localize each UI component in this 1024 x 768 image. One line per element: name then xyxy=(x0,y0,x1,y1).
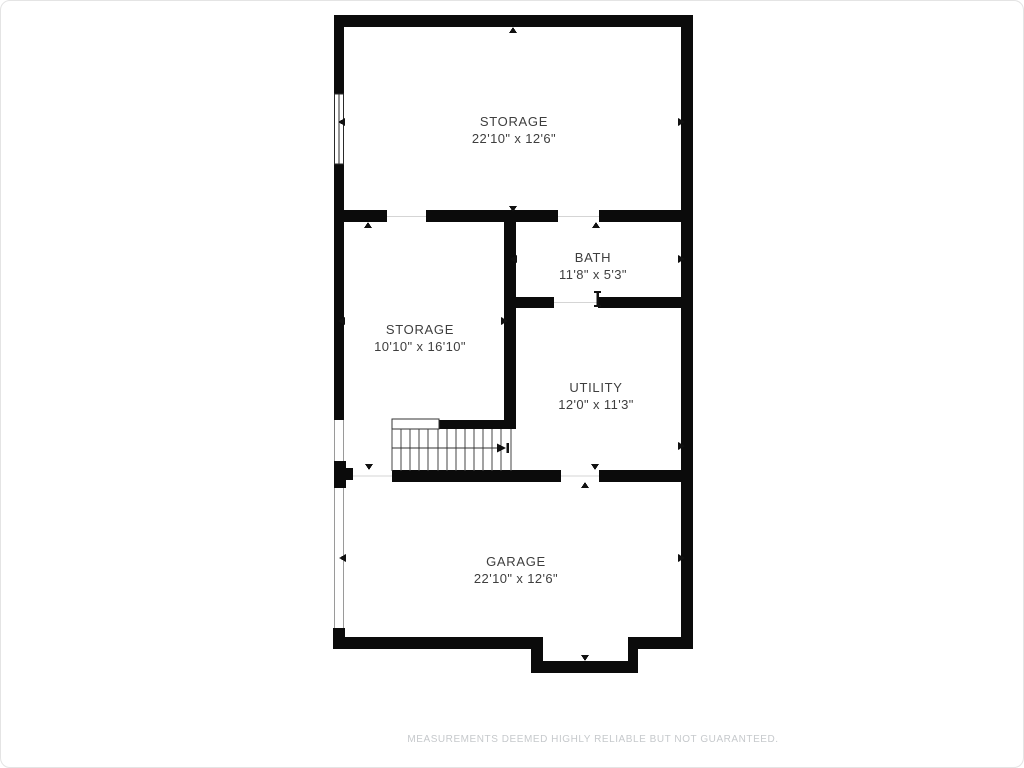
room-name: STORAGE xyxy=(472,114,556,130)
wall xyxy=(638,637,693,649)
room-label-utility: UTILITY 12'0" x 11'3" xyxy=(558,380,634,413)
wall xyxy=(334,210,387,222)
wall xyxy=(392,470,561,482)
room-label-storage-upper: STORAGE 22'10" x 12'6" xyxy=(472,114,556,147)
wall xyxy=(334,15,693,27)
wall xyxy=(504,297,554,308)
measure-arrow-icon xyxy=(509,27,517,33)
room-label-storage-middle: STORAGE 10'10" x 16'10" xyxy=(374,322,466,355)
wall xyxy=(439,420,516,429)
wall xyxy=(334,15,344,94)
wall xyxy=(599,470,693,482)
room-dimensions: 10'10" x 16'10" xyxy=(374,338,466,355)
wall xyxy=(628,637,638,673)
wall xyxy=(426,210,558,222)
room-dimensions: 11'8" x 5'3" xyxy=(559,266,627,283)
door-marker-icon xyxy=(364,222,372,228)
room-name: BATH xyxy=(559,250,627,266)
wall xyxy=(598,297,693,308)
disclaimer-text: MEASUREMENTS DEEMED HIGHLY RELIABLE BUT … xyxy=(407,734,778,745)
room-name: STORAGE xyxy=(374,322,466,338)
wall xyxy=(681,15,693,647)
room-label-bath: BATH 11'8" x 5'3" xyxy=(559,250,627,283)
room-dimensions: 22'10" x 12'6" xyxy=(472,130,556,147)
floor-plan-page: STORAGE 22'10" x 12'6" BATH 11'8" x 5'3"… xyxy=(0,0,1024,768)
room-label-garage: GARAGE 22'10" x 12'6" xyxy=(474,554,558,587)
door-marker-icon xyxy=(581,482,589,488)
measure-arrow-icon xyxy=(581,655,589,661)
stair-treads xyxy=(392,429,511,471)
wall xyxy=(333,637,543,649)
door-marker-icon xyxy=(591,464,599,470)
wall xyxy=(504,210,516,429)
wall xyxy=(531,661,638,673)
wall xyxy=(599,210,693,222)
door-marker-icon xyxy=(365,464,373,470)
measure-arrow-icon xyxy=(339,554,346,562)
door-marker-icon xyxy=(592,222,600,228)
room-dimensions: 22'10" x 12'6" xyxy=(474,570,558,587)
window-icon xyxy=(335,94,344,164)
wall xyxy=(334,164,344,420)
stair-landing xyxy=(392,419,439,429)
room-name: GARAGE xyxy=(474,554,558,570)
room-name: UTILITY xyxy=(558,380,634,396)
room-dimensions: 12'0" x 11'3" xyxy=(558,396,634,413)
wall-openings xyxy=(335,420,344,628)
wall xyxy=(334,468,353,480)
